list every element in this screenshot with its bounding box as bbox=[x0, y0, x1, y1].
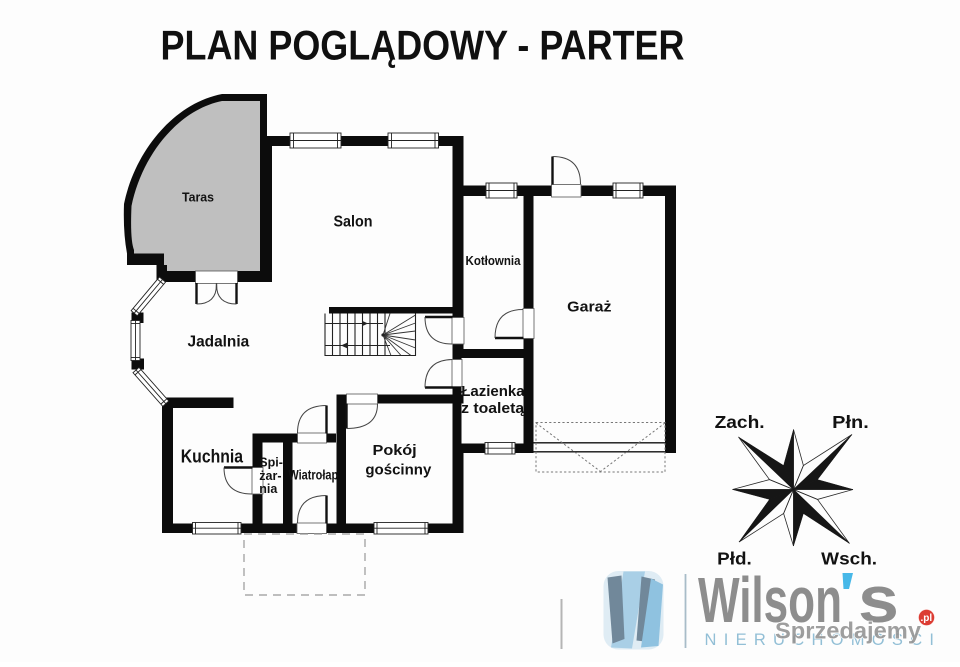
svg-text:.pl: .pl bbox=[920, 613, 932, 624]
svg-text:Płn.: Płn. bbox=[832, 412, 869, 432]
svg-text:Jadalnia: Jadalnia bbox=[188, 333, 250, 350]
svg-text:Kuchnia: Kuchnia bbox=[181, 445, 244, 466]
svg-text:Garaż: Garaż bbox=[567, 299, 611, 316]
svg-text:żar-: żar- bbox=[259, 469, 281, 483]
svg-text:Spi-: Spi- bbox=[259, 456, 283, 470]
svg-text:Salon: Salon bbox=[334, 213, 373, 230]
svg-text:PLAN POGLĄDOWY - PARTER: PLAN POGLĄDOWY - PARTER bbox=[161, 22, 685, 69]
svg-text:Sprzedajemy: Sprzedajemy bbox=[775, 618, 921, 644]
svg-text:Łazienka: Łazienka bbox=[461, 383, 525, 400]
svg-text:Zach.: Zach. bbox=[715, 412, 765, 432]
svg-text:gościnny: gościnny bbox=[365, 462, 431, 479]
svg-text:Wiatrołap: Wiatrołap bbox=[288, 468, 338, 483]
svg-text:nia: nia bbox=[259, 482, 278, 496]
svg-text:Kotłownia: Kotłownia bbox=[466, 253, 522, 268]
svg-text:Taras: Taras bbox=[182, 190, 214, 205]
svg-text:Pokój: Pokój bbox=[373, 442, 417, 459]
svg-text:z toaletą: z toaletą bbox=[461, 400, 525, 417]
